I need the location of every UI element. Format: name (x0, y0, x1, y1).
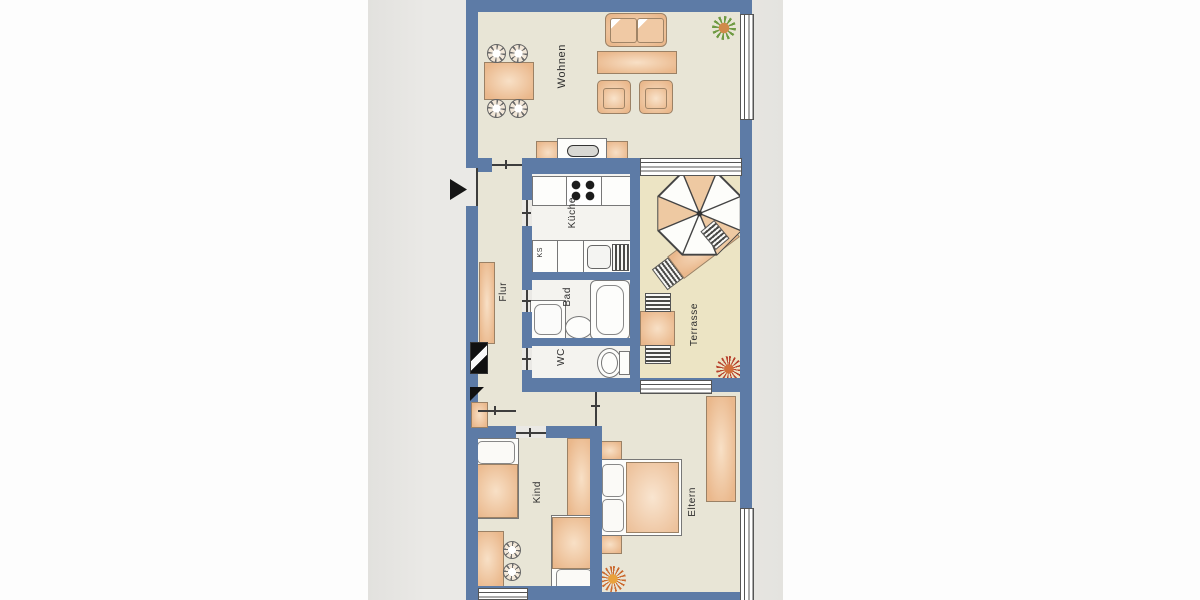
coffee-table (597, 51, 677, 74)
terrace-chair (645, 293, 671, 312)
dining-chair (509, 44, 528, 63)
eltern-double-bed (598, 459, 682, 536)
wall-bad-left-b (522, 312, 532, 348)
window-kind-bottom (478, 588, 528, 600)
armchair-seat (603, 88, 625, 109)
sofa-cushion (637, 18, 664, 43)
window-eltern-terrasse (640, 380, 712, 394)
door-kind-tick (529, 428, 531, 437)
terrace-chair (645, 345, 671, 364)
room-label-wohnen: Wohnen (556, 44, 568, 88)
armchair (597, 80, 631, 114)
dining-chair (509, 99, 528, 118)
sofa-cushion (610, 18, 637, 43)
wall-eltern-bottom (602, 592, 740, 600)
door-entrance (476, 168, 478, 206)
toilet-bowl-icon (601, 352, 618, 374)
room-label-bad: Bad (562, 287, 573, 307)
armchair (639, 80, 673, 114)
door-flur-corridor-tick (494, 406, 496, 415)
plant-icon (600, 566, 626, 592)
bed-blanket (626, 462, 679, 533)
wall-kueche-left-b (522, 226, 532, 272)
room-label-kind: Kind (532, 481, 543, 503)
eltern-wardrobe (706, 396, 736, 502)
room-label-wc: WC (556, 348, 567, 366)
armchair-seat (645, 88, 667, 109)
wall-kind-eltern-divider (590, 426, 602, 600)
kind-bed-blanket (474, 464, 518, 518)
wall-kueche-bottom (522, 272, 640, 280)
door-bad-tick (522, 300, 531, 302)
room-label-kueche: Küche (567, 197, 578, 228)
room-label-flur: Flur (498, 282, 509, 302)
door-eltern-tick (591, 405, 600, 407)
window-eltern-right (740, 508, 754, 600)
door-eltern (595, 392, 597, 426)
wall-kueche-left-a (522, 174, 532, 200)
door-flur-corridor (478, 410, 516, 412)
wall-wc-left (522, 370, 532, 378)
dining-chair (487, 99, 506, 118)
dining-table (484, 62, 534, 100)
dining-chair (487, 44, 506, 63)
plant-icon (712, 16, 736, 40)
door-kind (516, 432, 546, 434)
room-label-terrasse: Terrasse (689, 303, 700, 346)
wall-left-upper (466, 0, 478, 168)
door-wohnen-tick (505, 160, 507, 169)
tv-icon (567, 145, 599, 157)
kind-bed (473, 438, 519, 519)
room-label-ks: KS (537, 247, 544, 258)
bed-pillow (602, 499, 624, 532)
window-wohnen-terrasse (640, 158, 742, 176)
kitchen-sink-unit (583, 240, 632, 274)
sofa (605, 13, 667, 47)
bed-pillow (602, 464, 624, 497)
flur-wardrobe (479, 262, 495, 344)
sink-drainer-icon (612, 244, 629, 271)
kitchen-cabinet (557, 240, 585, 274)
shower-icon (530, 300, 566, 339)
room-label-eltern: Eltern (687, 487, 698, 517)
wall-bad-left-a (522, 280, 532, 290)
wall-top (466, 0, 752, 12)
kind-desk-chair (503, 541, 521, 559)
parasol-icon (652, 166, 747, 261)
wall-bad-wc-divider (532, 338, 630, 346)
window-wohnen-right (740, 14, 754, 120)
shaft-symbol-icon (470, 342, 488, 374)
flur-cabinet (471, 402, 488, 428)
wall-wohnen-stub (478, 158, 492, 172)
kind-bed-pillow (477, 441, 515, 464)
door-wc-tick (522, 358, 531, 360)
washbasin-icon (565, 316, 593, 339)
room-flur-corridor (478, 392, 602, 426)
bathtub-icon (590, 280, 630, 340)
floorplan-photo: Wohnen Küche KS Bad WC Flur Terrasse Kin… (0, 0, 1200, 600)
wall-kueche-top (522, 158, 640, 174)
toilet-tank-icon (619, 351, 630, 375)
wall-kueche-bad-right (630, 158, 640, 388)
sink-basin-icon (587, 245, 611, 269)
door-wohnen (492, 164, 522, 166)
terrace-table (640, 311, 675, 346)
door-kueche-tick (522, 212, 531, 214)
kind-desk-chair (503, 563, 521, 581)
